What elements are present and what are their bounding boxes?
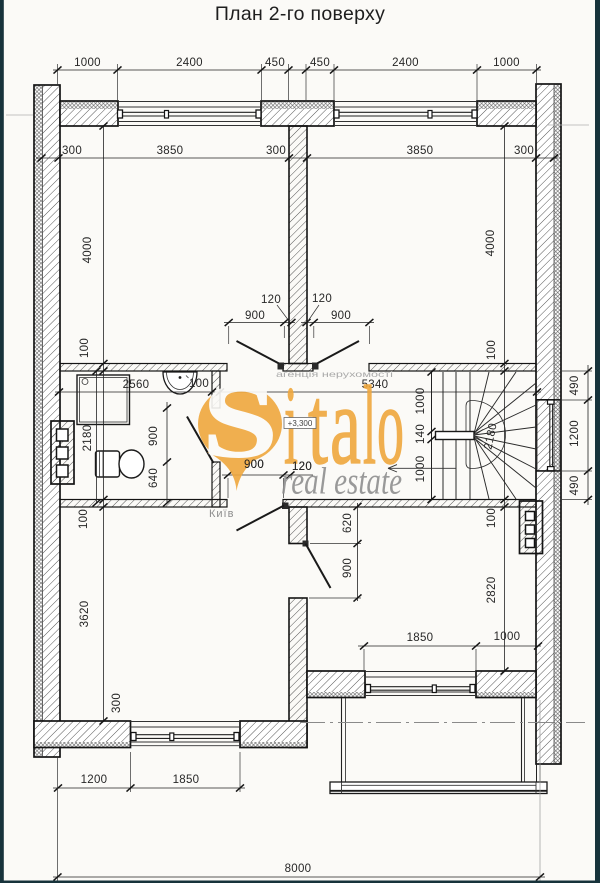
svg-text:1850: 1850 — [407, 632, 434, 644]
svg-text:агенція нерухомості: агенція нерухомості — [276, 369, 393, 379]
svg-text:3620: 3620 — [79, 601, 91, 628]
svg-text:2820: 2820 — [486, 577, 498, 604]
svg-text:2560: 2560 — [123, 379, 150, 391]
svg-text:1000: 1000 — [415, 456, 427, 483]
svg-text:140: 140 — [415, 424, 427, 444]
svg-text:450: 450 — [310, 57, 330, 69]
svg-text:План 2-го поверху: План 2-го поверху — [215, 3, 385, 25]
svg-text:1200: 1200 — [81, 774, 108, 786]
svg-text:900: 900 — [342, 558, 354, 578]
svg-text:620: 620 — [342, 513, 354, 533]
svg-text:300: 300 — [266, 145, 286, 157]
svg-text:640: 640 — [148, 468, 160, 488]
svg-text:2400: 2400 — [392, 57, 419, 69]
svg-text:2180: 2180 — [482, 422, 499, 451]
svg-text:300: 300 — [111, 693, 123, 713]
svg-text:1200: 1200 — [569, 420, 581, 447]
svg-text:120: 120 — [261, 294, 281, 306]
svg-text:300: 300 — [62, 145, 82, 157]
svg-text:4000: 4000 — [82, 237, 94, 264]
svg-text:4000: 4000 — [485, 230, 497, 257]
svg-text:900: 900 — [148, 426, 160, 446]
svg-text:8000: 8000 — [285, 863, 312, 875]
svg-text:100: 100 — [78, 509, 90, 529]
svg-text:450: 450 — [265, 57, 285, 69]
svg-text:1000: 1000 — [493, 57, 520, 69]
svg-text:300: 300 — [514, 145, 534, 157]
svg-text:900: 900 — [245, 310, 265, 322]
svg-text:900: 900 — [331, 310, 351, 322]
svg-text:100: 100 — [486, 508, 498, 528]
svg-text:1850: 1850 — [173, 774, 200, 786]
svg-text:1000: 1000 — [74, 57, 101, 69]
svg-text:+3,300: +3,300 — [288, 419, 313, 428]
svg-text:100: 100 — [79, 338, 91, 358]
svg-text:3850: 3850 — [157, 145, 184, 157]
svg-text:3850: 3850 — [407, 145, 434, 157]
svg-text:2400: 2400 — [176, 57, 203, 69]
svg-text:490: 490 — [569, 475, 581, 495]
svg-text:120: 120 — [292, 461, 312, 473]
svg-text:120: 120 — [312, 293, 332, 305]
svg-text:1000: 1000 — [415, 388, 427, 415]
svg-text:2180: 2180 — [82, 425, 94, 452]
svg-text:1000: 1000 — [494, 631, 521, 643]
svg-text:900: 900 — [244, 459, 264, 471]
svg-text:100: 100 — [486, 340, 498, 360]
svg-text:S: S — [202, 361, 278, 480]
svg-text:Київ: Київ — [209, 508, 234, 520]
svg-text:490: 490 — [569, 375, 581, 395]
